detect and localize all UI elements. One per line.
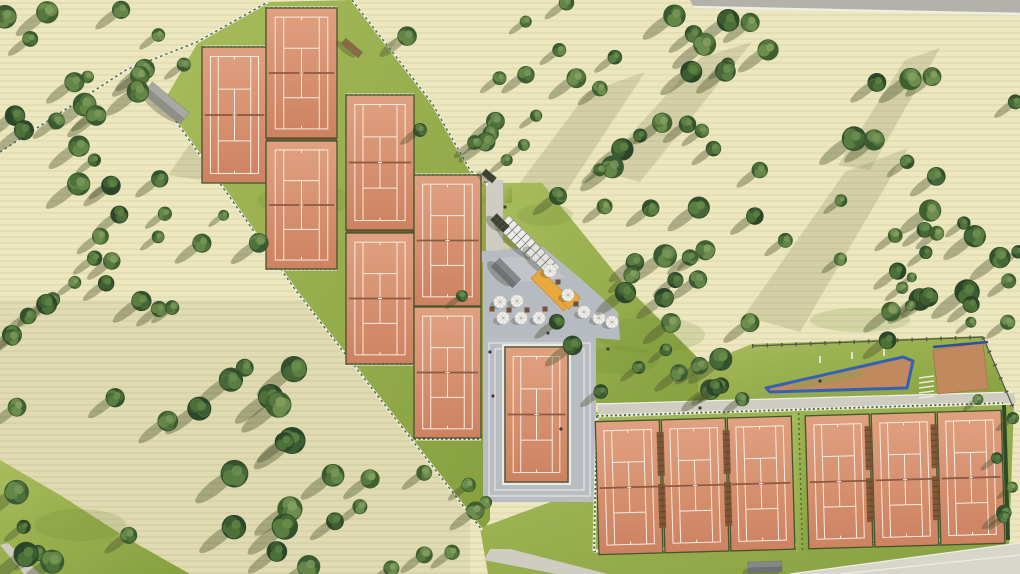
umbrella-pole [499, 301, 501, 303]
fence-ladder [723, 430, 731, 474]
person [503, 205, 506, 208]
person [559, 427, 562, 430]
umbrella-pole [567, 294, 569, 296]
umbrella-pole [516, 300, 518, 302]
fence-ladder [658, 484, 666, 528]
fence-ladder [866, 478, 874, 522]
tennis-court [346, 233, 414, 364]
patio-table [543, 307, 548, 312]
tennis-court [595, 420, 663, 555]
center-court [503, 345, 570, 484]
person [491, 394, 494, 397]
person [698, 406, 701, 409]
tennis-court [346, 95, 414, 230]
site-render-svg [0, 0, 1020, 574]
tennis-court [414, 307, 481, 438]
umbrella-pole [611, 321, 613, 323]
fence-ladder [724, 482, 732, 526]
umbrella-pole [502, 317, 504, 319]
umbrella-pole [538, 317, 540, 319]
tennis-court [266, 8, 337, 138]
tennis-court [505, 347, 568, 482]
south-kiosk [742, 561, 782, 574]
practice-court [933, 343, 988, 394]
umbrella-pole [520, 317, 522, 319]
patio-table [556, 280, 561, 285]
tennis-court [871, 412, 939, 547]
tennis-court [414, 175, 481, 306]
patio-table [574, 302, 579, 307]
grass-mottling [34, 509, 126, 541]
tennis-club-aerial-view [0, 0, 1020, 574]
fence-ladder [657, 432, 665, 476]
fence-ladder [932, 476, 940, 520]
tennis-court [661, 418, 729, 553]
fence-ladder [930, 424, 938, 468]
bottom-court-row [595, 407, 1005, 557]
tennis-court [727, 416, 795, 551]
umbrella-pole [598, 317, 600, 319]
person [488, 350, 491, 353]
fence-ladder [865, 426, 873, 470]
patio-table [525, 308, 530, 313]
tennis-court [266, 141, 337, 269]
umbrella-pole [549, 270, 551, 272]
person [818, 379, 821, 382]
tennis-court [202, 47, 267, 183]
tennis-court [805, 414, 873, 549]
person [606, 347, 609, 350]
patio-table [507, 308, 512, 313]
walkway-verge [504, 187, 512, 203]
umbrella-pole [583, 311, 585, 313]
